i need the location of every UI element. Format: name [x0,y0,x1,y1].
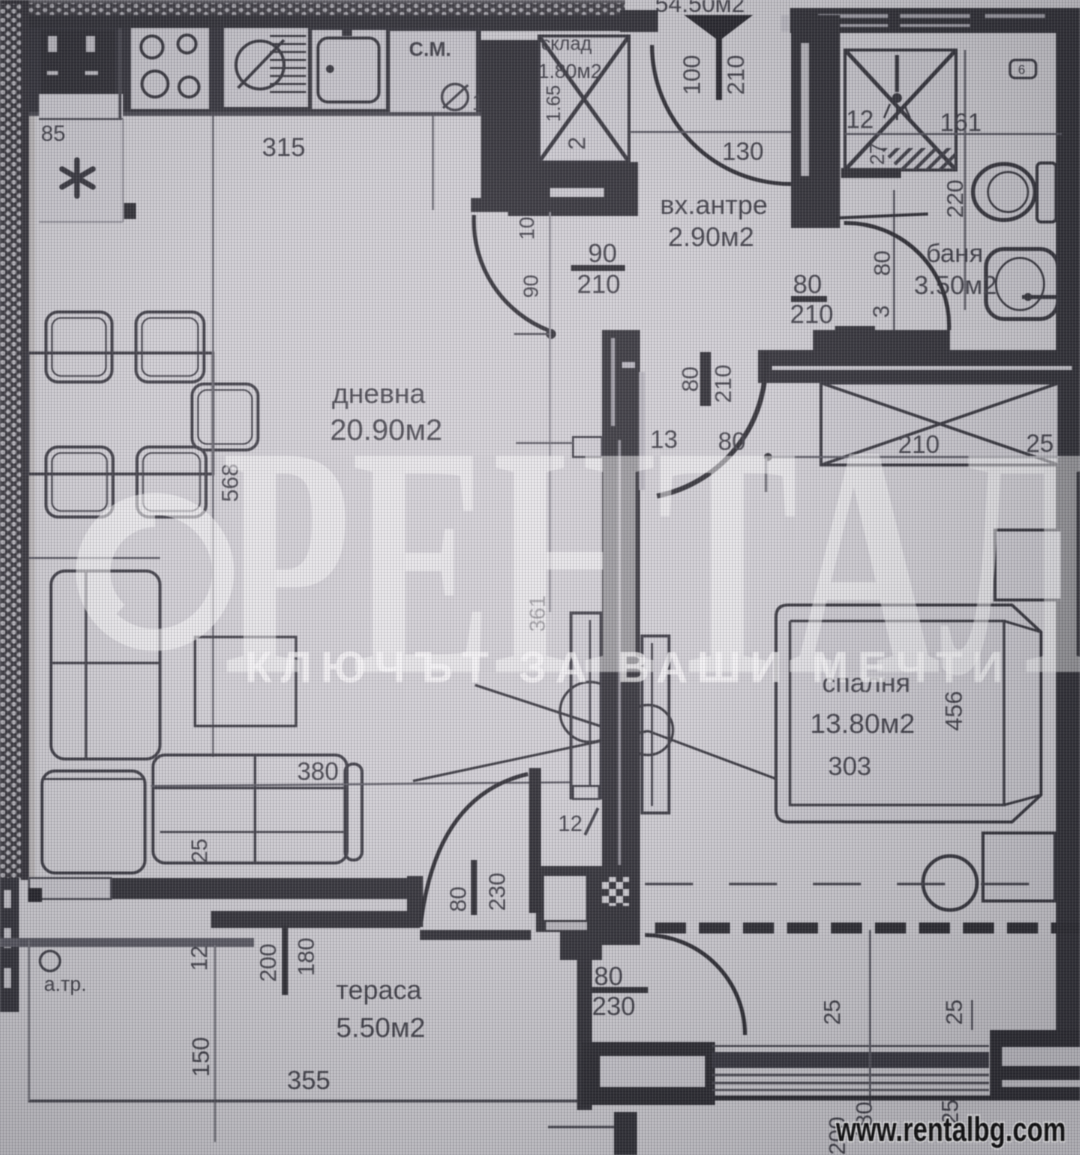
svg-text:www.rentalbg.com: www.rentalbg.com [835,1111,1066,1149]
